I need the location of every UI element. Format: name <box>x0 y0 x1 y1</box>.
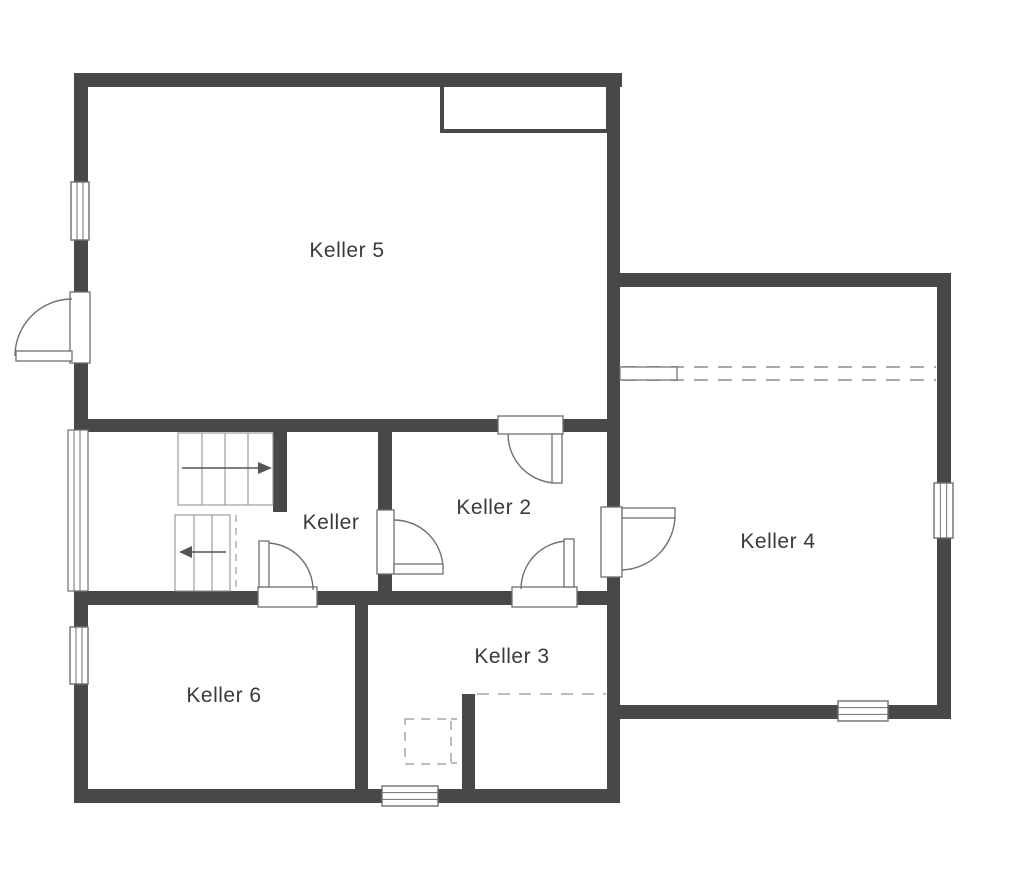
wall-hall-keller-divider <box>273 432 287 512</box>
floor-plan: Keller 5 Keller Keller 2 Keller 4 Keller… <box>0 0 1024 878</box>
room-label-keller-6: Keller 6 <box>186 684 261 708</box>
door-keller2-keller3-leaf <box>564 539 574 587</box>
door-entrance-left-swing-arc <box>15 299 72 356</box>
door-keller-keller2-swing-arc <box>394 520 443 569</box>
chimney-recess <box>442 85 608 131</box>
wall-left-wall-a <box>74 87 88 182</box>
window-keller5-left <box>71 182 89 240</box>
wall-keller4-bottom-wall <box>607 705 951 719</box>
door-keller2-keller4-opening <box>601 507 622 577</box>
door-entrance-left-opening <box>70 292 90 363</box>
wall-keller4-top-wall <box>620 273 951 287</box>
keller4-band-lintel <box>620 367 677 380</box>
door-keller5-keller2-opening <box>498 416 563 434</box>
door-hall-keller6-leaf <box>259 541 269 587</box>
wall-keller6-keller3-divider <box>355 605 368 789</box>
window-keller6-left <box>70 627 88 684</box>
floor-plan-canvas <box>0 0 1024 878</box>
door-keller2-keller4-leaf <box>622 508 675 518</box>
wall-keller3-stub-wall <box>462 694 475 789</box>
keller3-dashed-box <box>405 719 451 764</box>
room-label-keller-3: Keller 3 <box>474 645 549 669</box>
window-keller4-right <box>934 483 953 538</box>
wall-bottom-wall-left <box>74 789 620 803</box>
door-keller2-keller3-opening <box>512 587 577 607</box>
window-keller3-bottom <box>382 786 438 806</box>
room-label-keller-5: Keller 5 <box>309 239 384 263</box>
wall-left-wall-b <box>74 240 88 292</box>
door-hall-keller6-swing-arc <box>267 543 313 590</box>
door-keller2-keller4-swing-arc <box>622 516 675 570</box>
door-entrance-left-leaf <box>16 351 72 361</box>
door-keller5-keller2-swing-arc <box>508 434 557 483</box>
door-keller-keller2-opening <box>377 510 394 574</box>
door-keller-keller2-leaf <box>394 564 443 574</box>
room-label-keller-2: Keller 2 <box>456 496 531 520</box>
door-keller5-keller2-leaf <box>552 434 562 483</box>
door-hall-keller6-opening <box>258 587 317 607</box>
door-keller2-keller3-swing-arc <box>521 541 568 589</box>
room-label-keller: Keller <box>303 511 360 535</box>
wall-left-wall-e <box>74 684 88 803</box>
window-keller4-bottom <box>838 701 888 721</box>
room-label-keller-4: Keller 4 <box>740 530 815 554</box>
stair-window-band <box>68 430 88 591</box>
wall-right-spine-wall <box>607 73 620 803</box>
